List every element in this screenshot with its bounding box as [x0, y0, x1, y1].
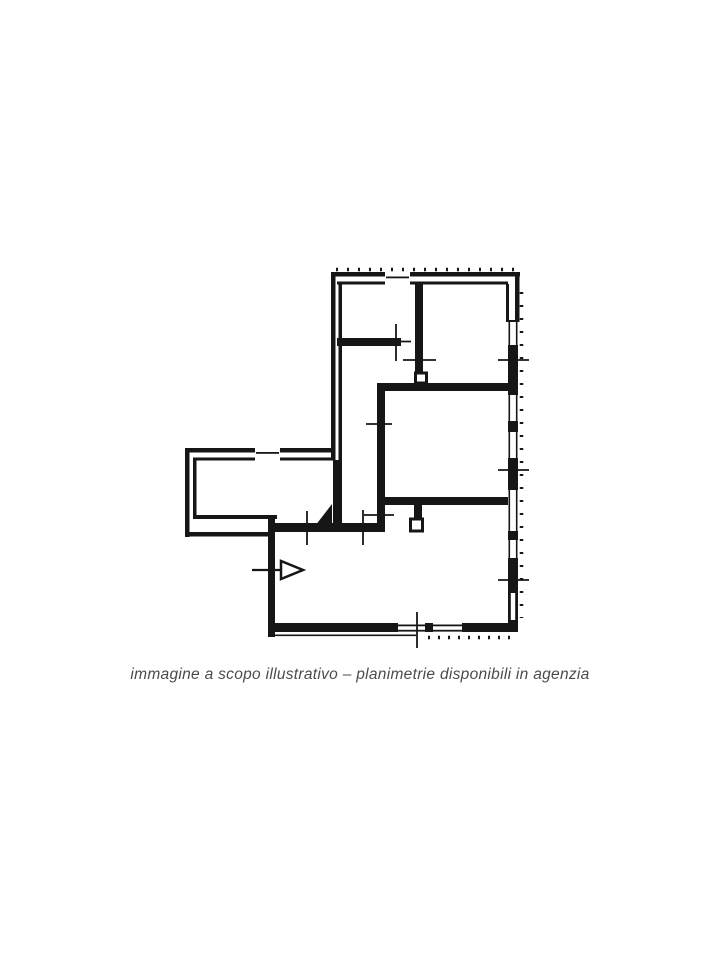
floor-plan — [0, 0, 720, 960]
floor-plan-svg — [0, 0, 720, 960]
window-frames — [256, 277, 518, 632]
hatch-marks — [336, 270, 522, 638]
interior-walls — [272, 284, 518, 532]
caption: immagine a scopo illustrativo – planimet… — [0, 666, 720, 684]
page: immagine a scopo illustrativo – planimet… — [0, 0, 720, 960]
outer-walls — [185, 272, 520, 637]
entrance-arrow-icon — [252, 561, 303, 579]
